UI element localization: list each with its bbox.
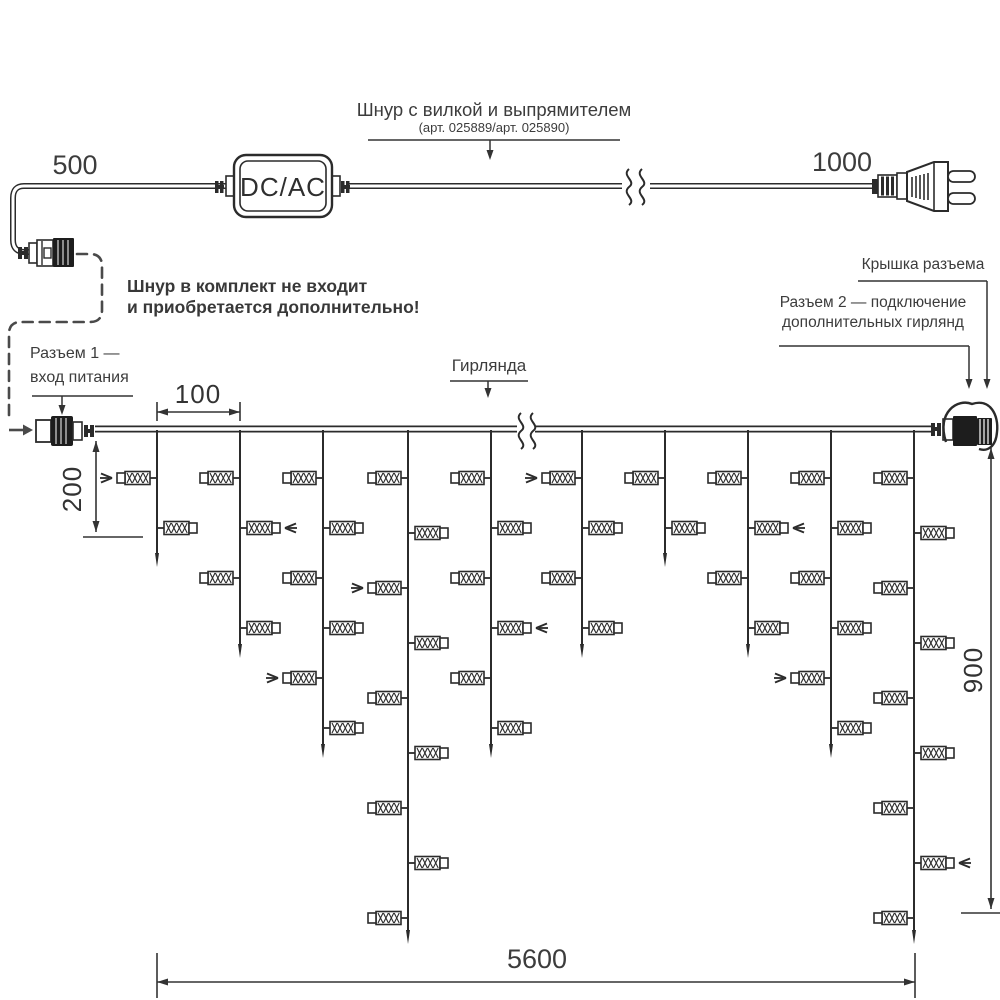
connector2-label-line1: Разъем 2 — подключение — [773, 294, 973, 312]
led-light — [791, 472, 831, 485]
garland-drop-10 — [874, 430, 971, 944]
direction-arrow-icon — [525, 474, 537, 483]
led-light — [914, 747, 954, 760]
led-light — [323, 622, 363, 635]
direction-arrow-icon — [351, 584, 363, 593]
led-light — [368, 582, 408, 595]
garland-wire — [95, 413, 931, 449]
warning-line-2: и приобретается дополнительно! — [127, 297, 420, 318]
down-arrow-icon — [485, 388, 492, 398]
cord-break-icon — [640, 169, 645, 205]
garland-drop-3 — [266, 430, 363, 758]
direction-arrow-icon — [774, 674, 786, 683]
connector-2 — [931, 403, 997, 450]
wire-break-icon — [519, 413, 524, 449]
led-light — [831, 722, 871, 735]
connector1-label-line2: вход питания — [30, 369, 129, 387]
led-light — [323, 722, 363, 735]
led-light — [708, 472, 748, 485]
power-cord — [13, 169, 876, 252]
led-light — [542, 472, 582, 485]
garland-drop-1 — [100, 430, 197, 567]
garland-drop-9 — [774, 430, 871, 758]
led-light — [874, 912, 914, 925]
led-light — [874, 472, 914, 485]
down-arrow-icon — [984, 379, 991, 389]
led-light — [708, 572, 748, 585]
garland-drop-6 — [525, 430, 622, 658]
led-light — [665, 522, 705, 535]
led-light — [283, 672, 323, 685]
led-light — [791, 572, 831, 585]
led-light — [831, 522, 871, 535]
led-light — [283, 472, 323, 485]
led-light — [748, 522, 788, 535]
led-light — [914, 527, 954, 540]
garland-drop-4 — [351, 430, 448, 944]
cord-article-label: (арт. 025889/арт. 025890) — [344, 120, 644, 135]
dim-label-900: 900 — [959, 620, 987, 720]
led-light — [625, 472, 665, 485]
direction-arrow-icon — [959, 859, 971, 868]
converter-label: DC/AC — [233, 172, 333, 203]
led-light — [582, 522, 622, 535]
led-light — [408, 527, 448, 540]
dim-label-100: 100 — [148, 379, 248, 410]
led-light — [451, 672, 491, 685]
led-light — [408, 637, 448, 650]
garland-drop-7 — [625, 430, 705, 567]
connector1-label-line1: Разъем 1 — — [30, 345, 120, 363]
led-light — [491, 622, 531, 635]
direction-arrow-icon — [266, 674, 278, 683]
led-light — [582, 622, 622, 635]
led-light — [200, 472, 240, 485]
cap-label: Крышка разъема — [848, 256, 998, 274]
wire-break-icon — [531, 413, 536, 449]
garland-label: Гирлянда — [409, 356, 569, 376]
led-light — [368, 912, 408, 925]
dim-label-500: 500 — [25, 150, 125, 181]
down-arrow-icon — [966, 379, 973, 389]
led-light — [368, 472, 408, 485]
led-light — [831, 622, 871, 635]
led-light — [491, 522, 531, 535]
dim-label-200: 200 — [58, 439, 86, 539]
direction-arrow-icon — [536, 624, 548, 633]
garland-drop-2 — [200, 430, 297, 658]
led-light — [914, 637, 954, 650]
led-light — [874, 692, 914, 705]
down-arrow-icon — [59, 405, 66, 415]
direction-arrow-icon — [100, 474, 112, 483]
led-light — [491, 722, 531, 735]
direction-arrow-icon — [285, 524, 297, 533]
led-light — [874, 802, 914, 815]
led-light — [283, 572, 323, 585]
led-light — [117, 472, 157, 485]
led-light — [451, 472, 491, 485]
warning-line-1: Шнур в комплект не входит — [127, 276, 367, 297]
cord-label: Шнур с вилкой и выпрямителем — [344, 99, 644, 121]
led-light — [914, 857, 954, 870]
led-light — [240, 622, 280, 635]
connector2-label-line2: дополнительных гирлянд — [773, 314, 973, 332]
led-light — [408, 747, 448, 760]
garland-drops — [100, 430, 971, 944]
led-light — [200, 572, 240, 585]
led-light — [368, 802, 408, 815]
dc-output-connector — [18, 238, 74, 267]
led-light — [542, 572, 582, 585]
led-light — [451, 572, 491, 585]
led-light — [408, 857, 448, 870]
led-light — [748, 622, 788, 635]
direction-arrow-icon — [793, 524, 805, 533]
dimension-200 — [83, 441, 143, 537]
down-arrow-icon — [487, 150, 494, 160]
dashed-arrow-icon — [23, 425, 33, 436]
led-light — [791, 672, 831, 685]
led-light — [240, 522, 280, 535]
led-light — [368, 692, 408, 705]
garland-technical-diagram: 500 1000 DC/AC Шнур с вилкой и выпрямите… — [0, 0, 1000, 1000]
garland-drop-8 — [708, 430, 805, 658]
dim-label-5600: 5600 — [487, 944, 587, 975]
led-light — [157, 522, 197, 535]
cord-break-icon — [627, 169, 632, 205]
led-light — [323, 522, 363, 535]
led-light — [874, 582, 914, 595]
dim-label-1000: 1000 — [792, 147, 892, 178]
